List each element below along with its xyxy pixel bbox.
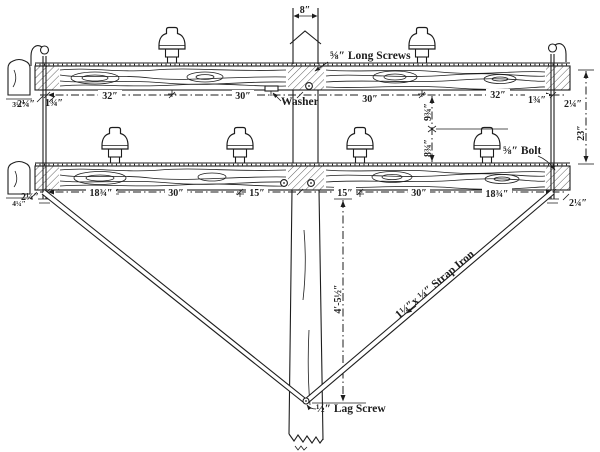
dim-arms-overall-text: 23″ (576, 125, 587, 141)
pole-break-line (289, 434, 323, 443)
dim-top-end-right: 2¼″ (564, 99, 582, 110)
callout-strap-iron: 1¼″x ¼″ Strap Iron (393, 248, 477, 321)
dim-top-32-left: 32″ (102, 91, 118, 102)
dim-arms-overall (578, 70, 594, 164)
glass-insulator-bottom-1 (102, 128, 128, 164)
glass-insulator-bottom-2 (227, 128, 253, 164)
bottom-crossarm (35, 163, 570, 190)
callout-leaders (273, 62, 555, 409)
strap-iron-brace-left (42, 190, 305, 402)
dim-top-32-right: 32″ (490, 90, 506, 101)
pole-break-squiggle (295, 446, 307, 450)
dim-between-arms (428, 96, 508, 162)
pole-top-roof (290, 31, 321, 44)
top-crossarm (35, 63, 570, 90)
glass-insulator-top-1 (159, 28, 185, 64)
dim-arm-section-top: 3¼″ (12, 100, 26, 109)
dim-top-30-right: 30″ (362, 94, 378, 105)
crossarm-section-top (6, 60, 32, 100)
callout-lag-screw: ½″ Lag Screw (316, 403, 386, 415)
glass-insulator-bottom-4 (474, 128, 500, 164)
pole-double-crossarm-diagram: 8″ ⅝″ Long Screws Washer ⅝″ Bolt ½″ Lag … (0, 0, 600, 452)
dim-bottom-15-left: 15″ (249, 188, 265, 199)
lag-screw-point (303, 398, 309, 404)
dim-between-arms-upper: 9¾″ (423, 103, 434, 121)
callout-bolt: ⅝″ Bolt (503, 145, 541, 157)
leader-lag-screw (307, 405, 316, 409)
glass-insulator-top-2 (409, 28, 435, 64)
pole-grain (303, 230, 310, 405)
glass-insulator-bottom-3 (347, 128, 373, 164)
callout-long-screws: ⅝″ Long Screws (330, 50, 411, 62)
dim-brace-drop-text: 4′-5½″ (333, 284, 344, 313)
dim-bottom-30-right: 30″ (411, 188, 427, 199)
dim-bottom-end-right: 2¼″ (569, 198, 587, 209)
dim-pole-width-text: 8″ (300, 5, 311, 16)
leader-washer (273, 93, 281, 101)
dim-top-offset-left: 1¾″ (45, 98, 63, 109)
dim-top-30-left: 30″ (235, 91, 251, 102)
dim-top-offset-right: 1¾″ (528, 95, 546, 106)
dim-bottom-1875-right: 18¾″ (485, 189, 508, 200)
crossarm-construction-figure: 8″ ⅝″ Long Screws Washer ⅝″ Bolt ½″ Lag … (0, 0, 600, 452)
dim-arm-section-bottom: 4¼″ (12, 199, 26, 208)
dim-bottom-30-left: 30″ (168, 188, 184, 199)
dim-between-arms-lower: 8¾″ (423, 139, 434, 157)
dim-bottom-15-right: 15″ (337, 188, 353, 199)
callout-washer: Washer (281, 96, 319, 108)
dim-bottom-1875-left: 18¾″ (89, 188, 112, 199)
